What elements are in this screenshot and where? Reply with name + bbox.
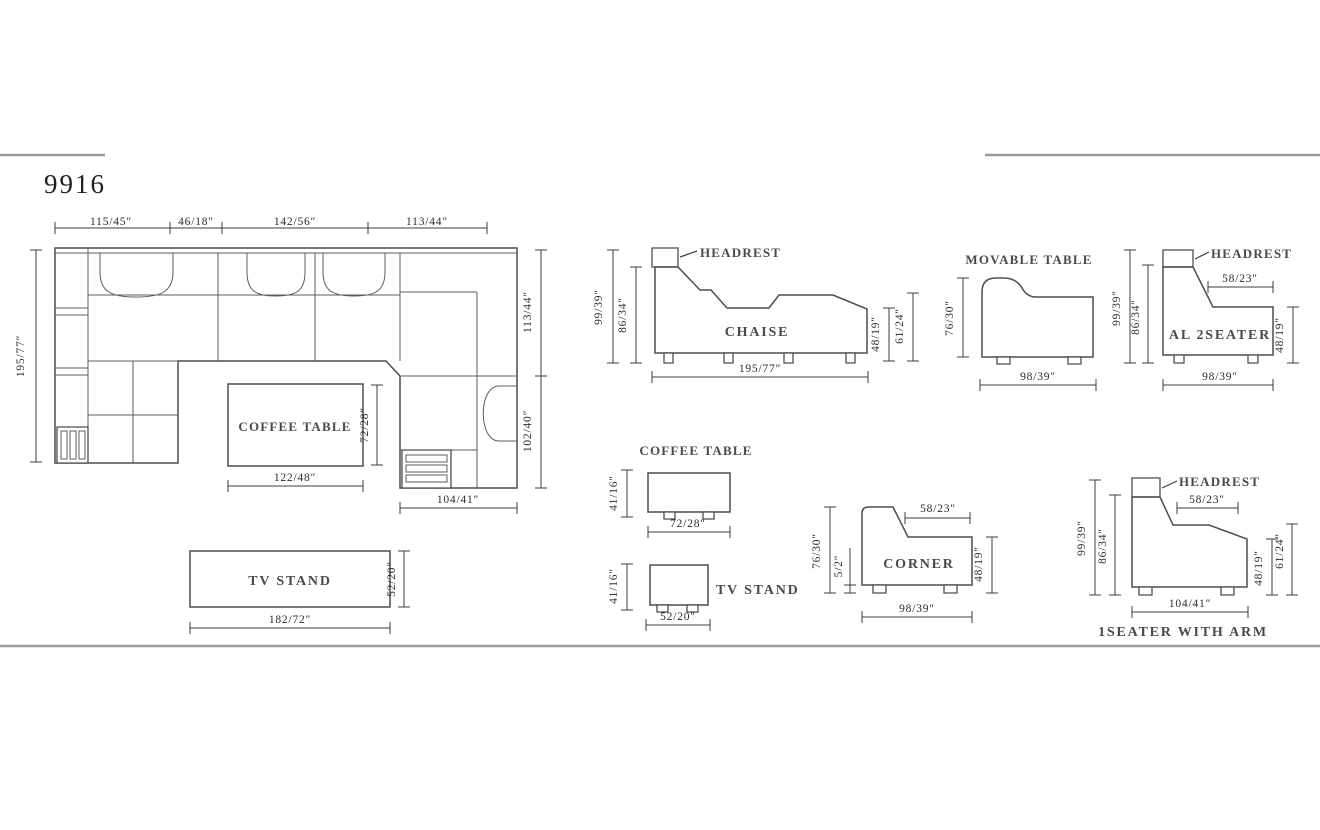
corner-dim-height: 76/30″ <box>811 533 823 569</box>
movable-table-outline <box>982 278 1093 357</box>
plan-dim-line-left <box>30 250 42 462</box>
chaise-dim-height: 99/39″ <box>593 289 605 325</box>
tv-stand-plan-dim-depth: 52/20″ <box>386 561 398 597</box>
corner-dim-line-height <box>824 507 836 593</box>
chaise-headrest-box <box>652 248 678 267</box>
al-2seater-headrest-box <box>1163 250 1193 267</box>
plan-dim-top-2: 46/18″ <box>178 216 214 228</box>
al-2seater-dim-seat-depth: 58/23″ <box>1222 273 1258 285</box>
plan-dim-top-3: 142/56″ <box>274 216 316 228</box>
corner-dim-width: 98/39″ <box>899 603 935 615</box>
tv-stand-side-dim-line-height <box>621 564 633 610</box>
coffee-table-side-label: COFFEE TABLE <box>639 443 752 458</box>
al-2seater-dim-width: 98/39″ <box>1202 371 1238 383</box>
one-seater-dim-back-height: 86/34″ <box>1097 528 1109 564</box>
tv-stand-elevation: 41/16″ TV STAND 52/20″ <box>608 564 800 631</box>
chaise-headrest-leader <box>680 251 697 257</box>
tv-stand-plan-dim-width: 182/72″ <box>269 614 311 626</box>
movable-table-feet <box>997 357 1081 364</box>
al-2seater-feet <box>1174 355 1258 363</box>
corner-feet <box>873 585 957 593</box>
tv-stand-side-dim-height: 41/16″ <box>608 568 620 604</box>
chaise-feet <box>664 353 855 363</box>
al-2seater-dim-back-height: 86/34″ <box>1130 299 1142 335</box>
coffee-table-plan-dim-depth: 72/28″ <box>359 407 371 443</box>
corner-outline <box>862 507 972 585</box>
corner-label: CORNER <box>883 557 954 572</box>
coffee-table-side-dim-height: 41/16″ <box>608 475 620 511</box>
one-seater-dim-seat-height: 48/19″ <box>1253 550 1265 586</box>
chaise-label: CHAISE <box>725 325 789 340</box>
chaise-dim-line-back-height <box>630 267 642 363</box>
plan-dim-top-4: 113/44″ <box>406 216 448 228</box>
tv-stand-side-dim-width: 52/20″ <box>660 611 696 623</box>
corner-elevation: 76/30″ 5/2″ CORNER 58/23″ 48/19″ 98/39″ <box>811 503 998 623</box>
plan-dim-right-upper: 113/44″ <box>522 291 534 333</box>
corner-dim-seat-height: 48/19″ <box>973 546 985 582</box>
al-2seater-dim-line-seat-height <box>1287 307 1299 363</box>
tv-stand-side-label: TV STAND <box>716 583 800 598</box>
al-2seater-elevation: 99/39″ 86/34″ HEADREST 58/23″ AL 2SEATER… <box>1111 246 1299 391</box>
plan-dim-bottom-right: 104/41″ <box>437 494 479 506</box>
movable-table-label: MOVABLE TABLE <box>965 252 1092 267</box>
coffee-table-plan-label: COFFEE TABLE <box>238 419 351 434</box>
al-2seater-dim-seat-height: 48/19″ <box>1274 317 1286 353</box>
tv-stand-side-outline <box>650 565 708 605</box>
movable-table-dim-width: 98/39″ <box>1020 371 1056 383</box>
tv-stand-plan-dim-line-depth <box>398 551 410 607</box>
corner-dim-line-foot-height <box>844 548 856 593</box>
one-seater-dim-line-arm-height <box>1286 524 1298 595</box>
one-seater-outline <box>1132 497 1247 587</box>
coffee-table-plan-dim-line-depth <box>371 385 383 465</box>
plan-dim-right-lower: 102/40″ <box>522 410 534 452</box>
al-2seater-label: AL 2SEATER <box>1169 328 1271 343</box>
one-seater-headrest-leader <box>1162 481 1177 488</box>
one-seater-label: 1SEATER WITH ARM <box>1098 625 1268 640</box>
chaise-dim-line-arm-height <box>907 293 919 361</box>
plan-headrest-curve-side <box>483 386 517 441</box>
coffee-table-side-dim-width: 72/28″ <box>670 518 706 530</box>
one-seater-headrest-box <box>1132 478 1160 497</box>
chaise-outline <box>655 267 867 353</box>
corner-dim-line-seat-height <box>986 537 998 593</box>
chaise-headrest-label: HEADREST <box>700 245 781 260</box>
one-seater-dim-arm-height: 61/24″ <box>1274 533 1286 569</box>
chaise-dim-arm-height: 61/24″ <box>894 308 906 344</box>
movable-table-dim-line-height <box>957 278 969 357</box>
plan-dim-left: 195/77″ <box>15 335 27 377</box>
chaise-dim-back-height: 86/34″ <box>617 297 629 333</box>
plan-dim-line-right <box>535 250 547 488</box>
al-2seater-headrest-label: HEADREST <box>1211 246 1292 261</box>
plan-dim-top-1: 115/45″ <box>90 216 132 228</box>
plan-view: 115/45″ 46/18″ 142/56″ 113/44″ 195/77″ 1… <box>15 216 547 634</box>
chaise-dim-width: 195/77″ <box>739 363 781 375</box>
al-2seater-dim-line-back-height <box>1142 265 1154 363</box>
al-2seater-dim-height: 99/39″ <box>1111 290 1123 326</box>
movable-table-elevation: MOVABLE TABLE 76/30″ 98/39″ <box>944 252 1096 391</box>
coffee-table-side-outline <box>648 473 730 512</box>
movable-table-dim-height: 76/30″ <box>944 300 956 336</box>
one-seater-headrest-label: HEADREST <box>1179 474 1260 489</box>
coffee-table-side-dim-line-height <box>621 470 633 517</box>
one-seater-dim-width: 104/41″ <box>1169 598 1211 610</box>
one-seater-elevation: 99/39″ 86/34″ HEADREST 58/23″ 48/19″ 61/… <box>1076 474 1298 640</box>
coffee-table-plan-dim-width: 122/48″ <box>274 472 316 484</box>
furniture-spec-sheet: 9916 115/45″ 46/18″ 142/56″ 113/44″ 195/… <box>0 0 1320 830</box>
corner-dim-seat-depth: 58/23″ <box>920 503 956 515</box>
chaise-dim-seat-height: 48/19″ <box>870 316 882 352</box>
spec-drawing: 9916 115/45″ 46/18″ 142/56″ 113/44″ 195/… <box>0 0 1320 830</box>
corner-dim-foot-height: 5/2″ <box>833 555 845 578</box>
one-seater-dim-height: 99/39″ <box>1076 520 1088 556</box>
one-seater-dim-line-back-height <box>1109 495 1121 595</box>
model-number: 9916 <box>44 169 106 199</box>
chaise-elevation: 99/39″ 86/34″ HEADREST CHAISE 48/19″ 61/… <box>593 245 919 383</box>
plan-slat-block-left-frame <box>57 427 88 463</box>
one-seater-dim-seat-depth: 58/23″ <box>1189 494 1225 506</box>
al-2seater-headrest-leader <box>1195 252 1209 259</box>
tv-stand-plan-label: TV STAND <box>248 574 332 589</box>
one-seater-feet <box>1139 587 1234 595</box>
coffee-table-elevation: COFFEE TABLE 41/16″ 72/28″ <box>608 443 753 538</box>
plan-headrest-curves <box>100 253 385 297</box>
